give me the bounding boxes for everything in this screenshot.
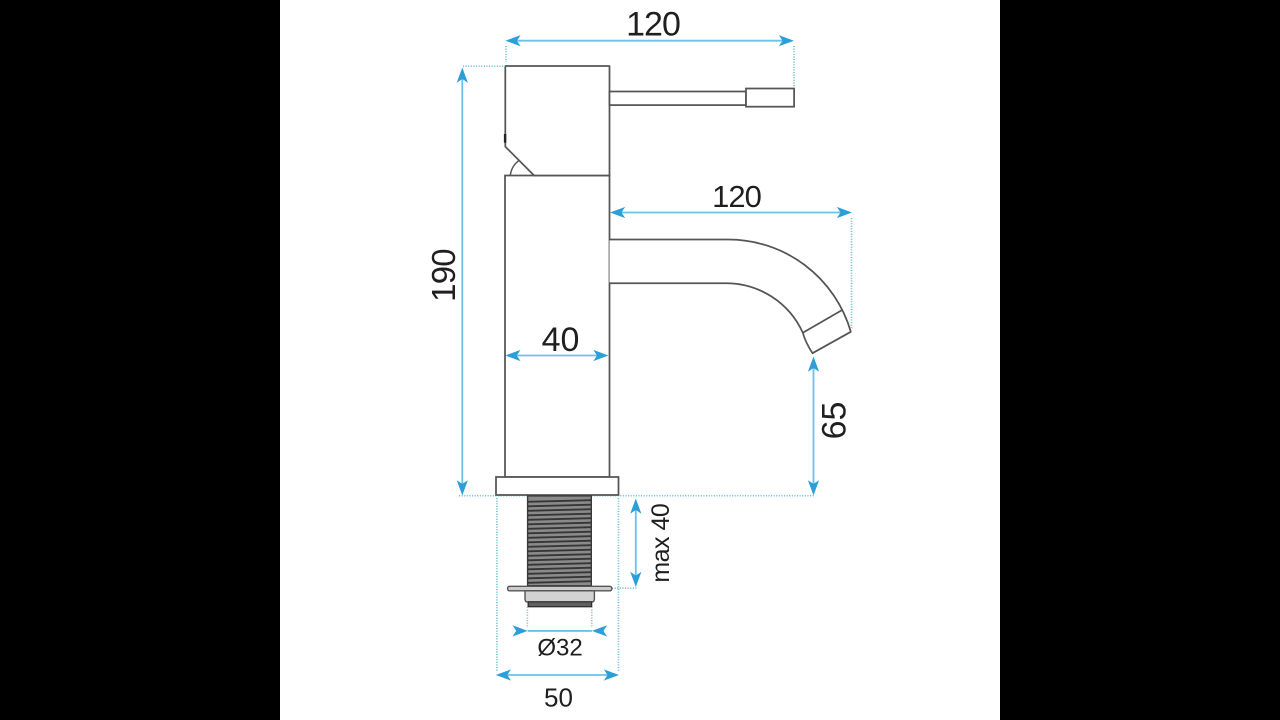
- svg-text:max 40: max 40: [647, 504, 675, 583]
- svg-text:65: 65: [816, 402, 854, 440]
- svg-text:40: 40: [542, 321, 580, 359]
- svg-text:120: 120: [626, 6, 680, 44]
- svg-text:120: 120: [712, 179, 761, 214]
- svg-text:190: 190: [425, 249, 462, 302]
- svg-text:50: 50: [544, 683, 573, 713]
- svg-text:Ø32: Ø32: [537, 635, 582, 662]
